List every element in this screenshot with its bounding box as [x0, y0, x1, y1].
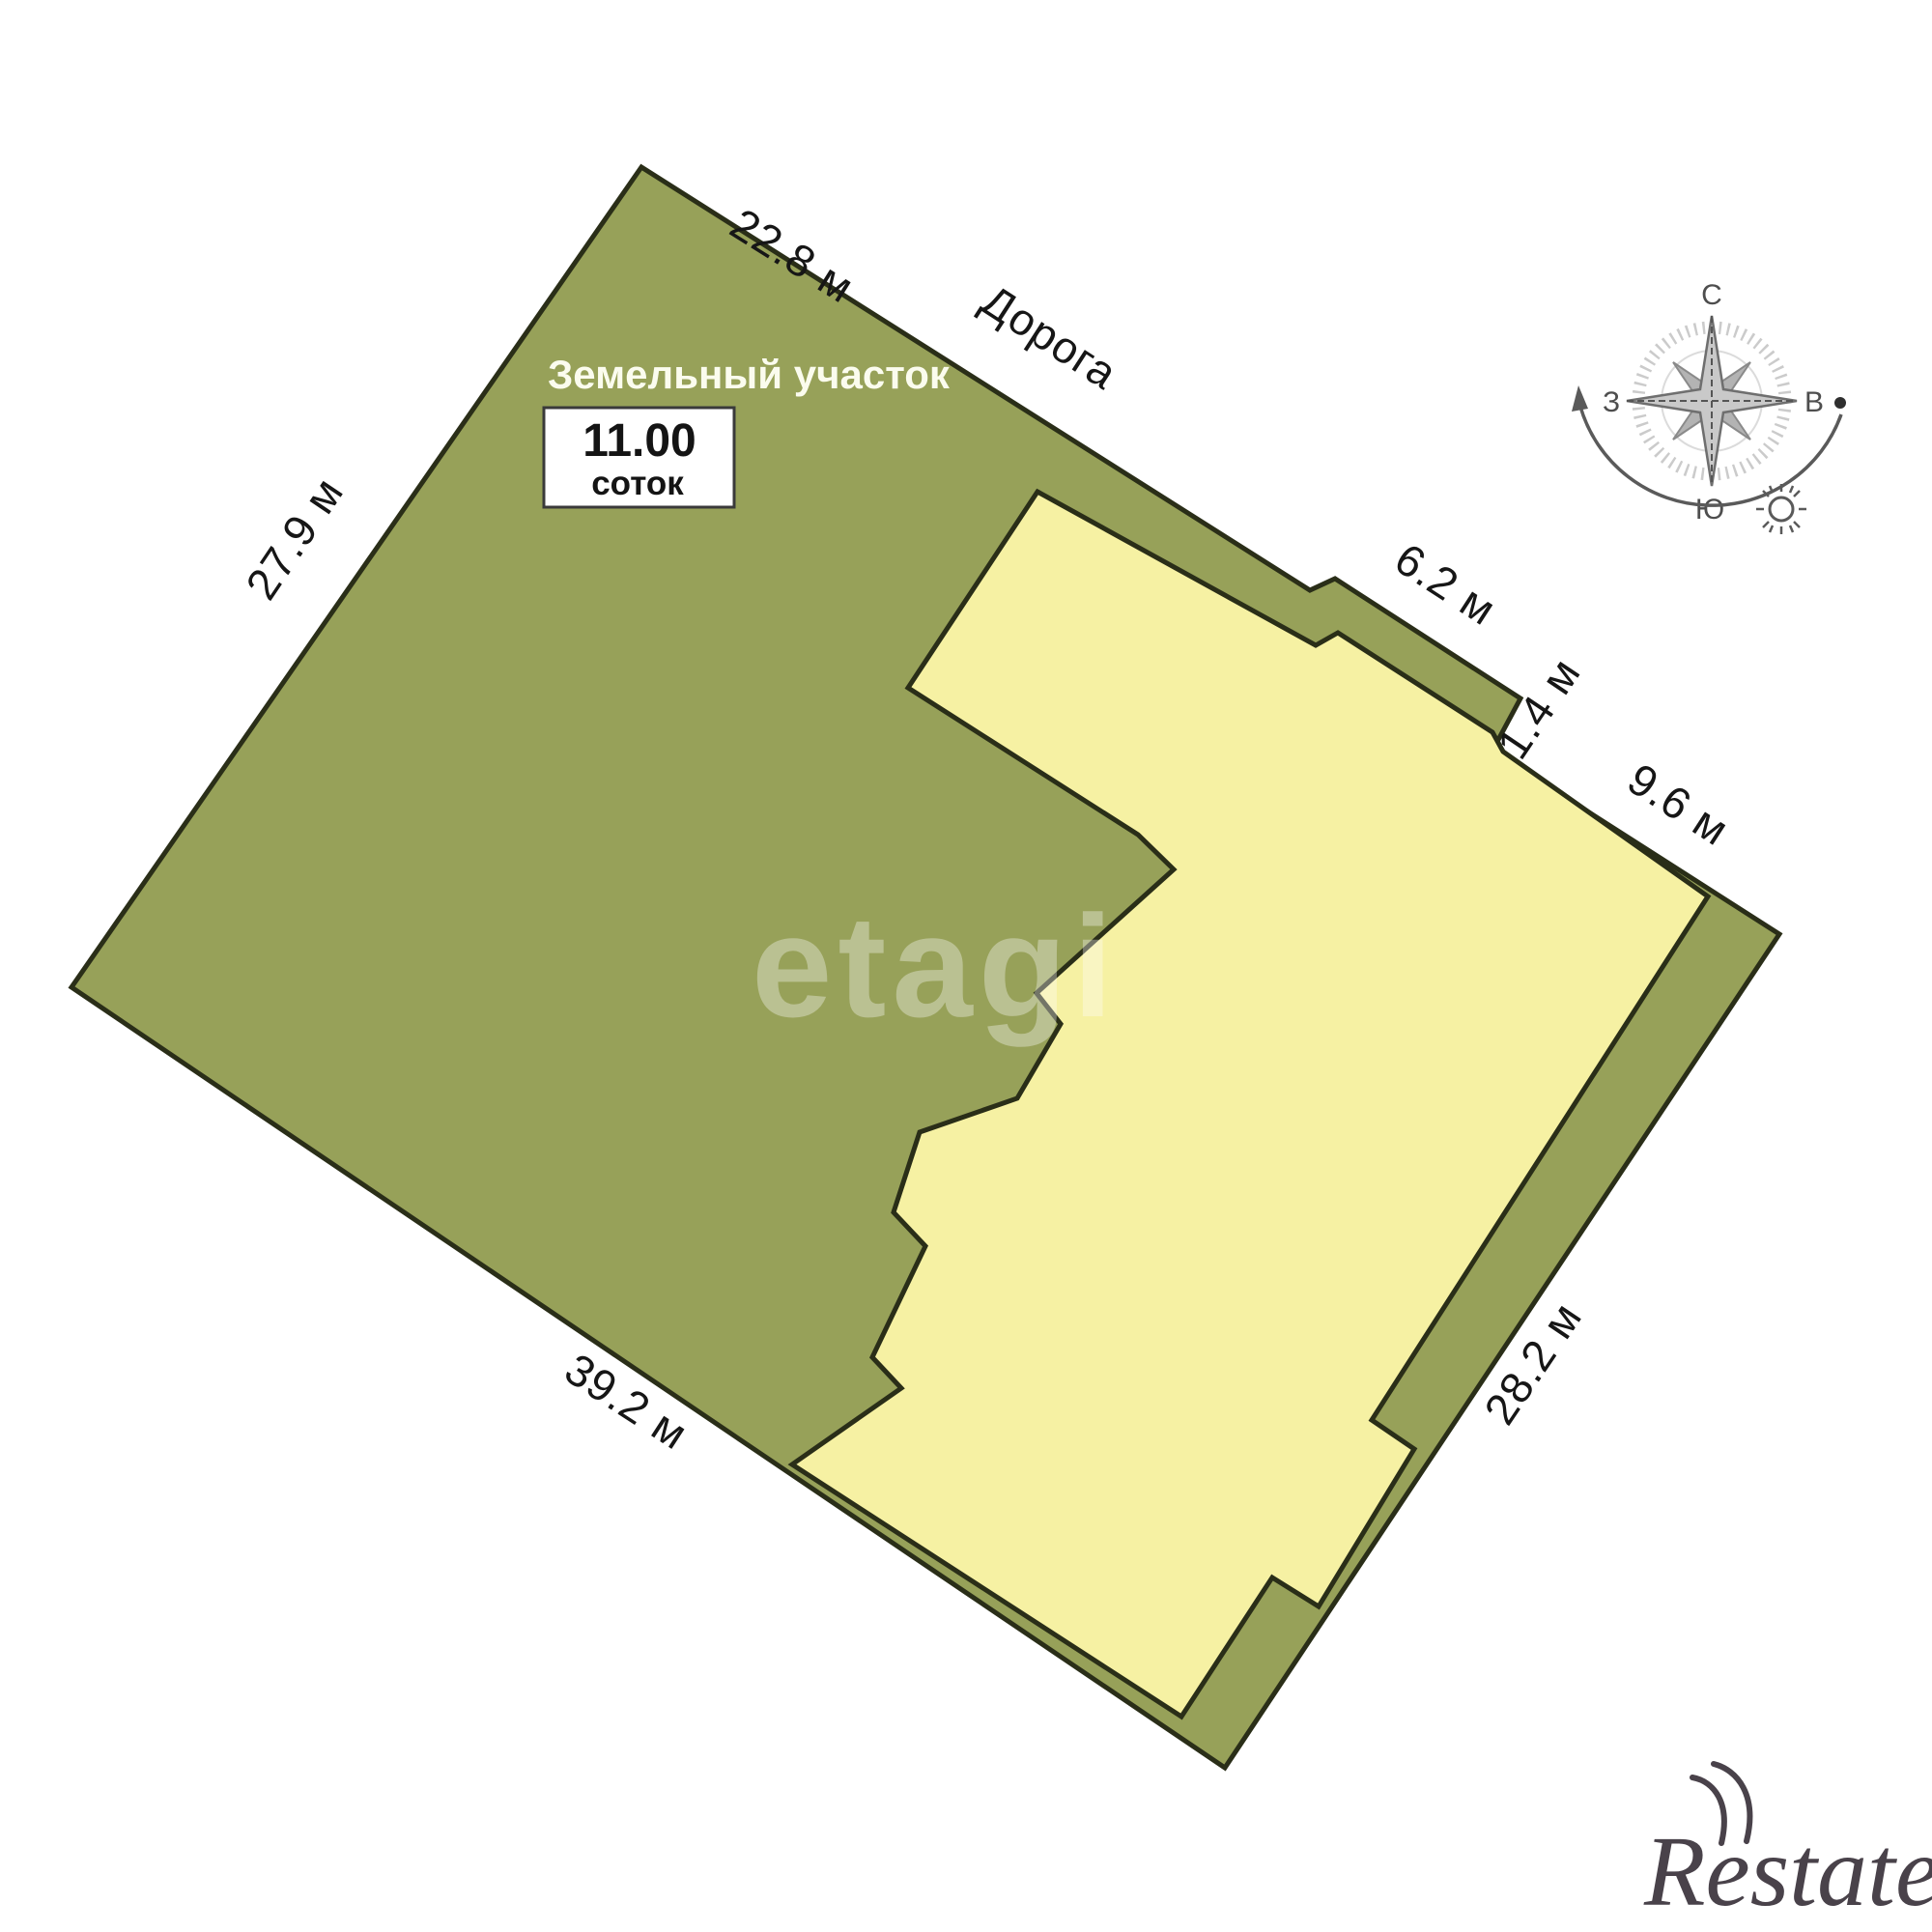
compass-rose: С Ю З В — [1572, 279, 1846, 534]
compass-east-dot — [1834, 397, 1846, 409]
site-plan-page: etagi циан Земельный участок 11.00 соток… — [0, 0, 1932, 1932]
sun-icon — [1756, 484, 1806, 534]
area-box: 11.00 соток — [544, 408, 734, 507]
area-unit-label: соток — [591, 465, 684, 502]
dimension-road-edge: 6.2 м — [1386, 533, 1505, 635]
area-value-label: 11.00 — [582, 415, 696, 467]
compass-east-label: В — [1804, 386, 1824, 418]
road-label: Дорога — [973, 274, 1126, 398]
compass-west-label: З — [1603, 386, 1620, 418]
dimension-after-step: 9.6 м — [1619, 753, 1738, 855]
dimension-left: 27.9 м — [236, 469, 353, 609]
restate-logo-text: Restate — [1643, 1816, 1932, 1927]
parcel-title-label: Земельный участок — [548, 352, 951, 397]
compass-north-label: С — [1701, 279, 1722, 311]
watermark-etagi: etagi — [752, 885, 1119, 1047]
site-plan-canvas: etagi циан Земельный участок 11.00 соток… — [0, 0, 1932, 1932]
compass-south-label: Ю — [1695, 494, 1724, 526]
sun-path-arrow — [1572, 385, 1588, 412]
watermark-restate: Restate — [1643, 1764, 1932, 1927]
watermark-cian: циан — [1316, 1616, 1550, 1719]
